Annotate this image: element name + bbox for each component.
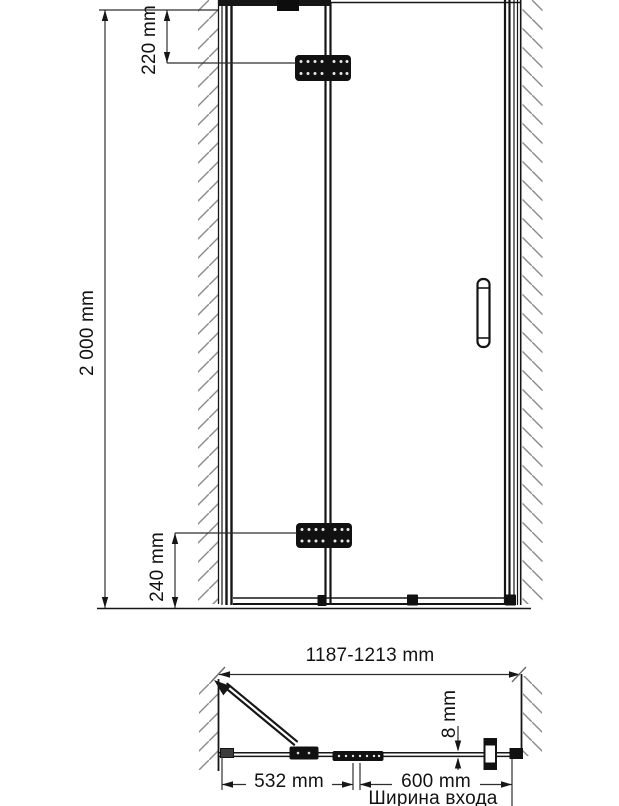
- height-label: 2 000 mm: [77, 290, 98, 376]
- right-wall-hatching: [523, 0, 543, 604]
- top-hinge: [295, 55, 351, 81]
- entrance-caption: Ширина входа: [368, 788, 497, 806]
- dimension-door-width: 532 mm: [222, 757, 353, 792]
- left-wall-profile: [222, 0, 232, 605]
- door-width-label: 532 mm: [254, 771, 324, 792]
- left-wall-hatching: [198, 0, 218, 604]
- overall-width-label: 1187-1213 mm: [306, 645, 435, 666]
- plan-right-wall-hatching: [523, 676, 542, 756]
- plan-right-bracket: [510, 748, 524, 759]
- plan-left-wall-hatching: [199, 682, 218, 770]
- plan-door-handle: [485, 739, 497, 769]
- dimension-glass-thickness: 8 mm: [439, 690, 461, 771]
- bottom-water-bar: [233, 595, 516, 607]
- plan-left-bracket: [221, 749, 234, 758]
- open-door-leaf: [214, 680, 297, 745]
- center-hinge-block: [333, 751, 384, 761]
- hinge-stile: [326, 2, 331, 605]
- top-hinge-offset-label: 220 mm: [139, 5, 160, 75]
- bottom-hinge-offset-label: 240 mm: [147, 532, 168, 602]
- pivot-block: [290, 747, 319, 760]
- technical-drawing: 2 000 mm 220 mm 240 mm 1187-1213 mm: [0, 0, 619, 806]
- shower-door-drawing: 2 000 mm 220 mm 240 mm 1187-1213 mm: [0, 0, 619, 806]
- bottom-hinge: [296, 523, 352, 548]
- dimension-overall-width: 1187-1213 mm: [211, 645, 526, 682]
- dimension-height: 2 000 mm: [77, 10, 218, 608]
- glass-thickness-label: 8 mm: [439, 690, 460, 738]
- plan-left-wall: [199, 679, 219, 771]
- plan-right-wall: [522, 674, 543, 757]
- door-handle: [478, 279, 490, 347]
- right-wall-profile: [505, 0, 521, 605]
- plan-view: 1187-1213 mm: [199, 645, 542, 806]
- top-support-bar: [218, 0, 331, 6]
- front-view: 2 000 mm 220 mm 240 mm: [77, 0, 542, 609]
- top-wall-bracket: [277, 0, 299, 11]
